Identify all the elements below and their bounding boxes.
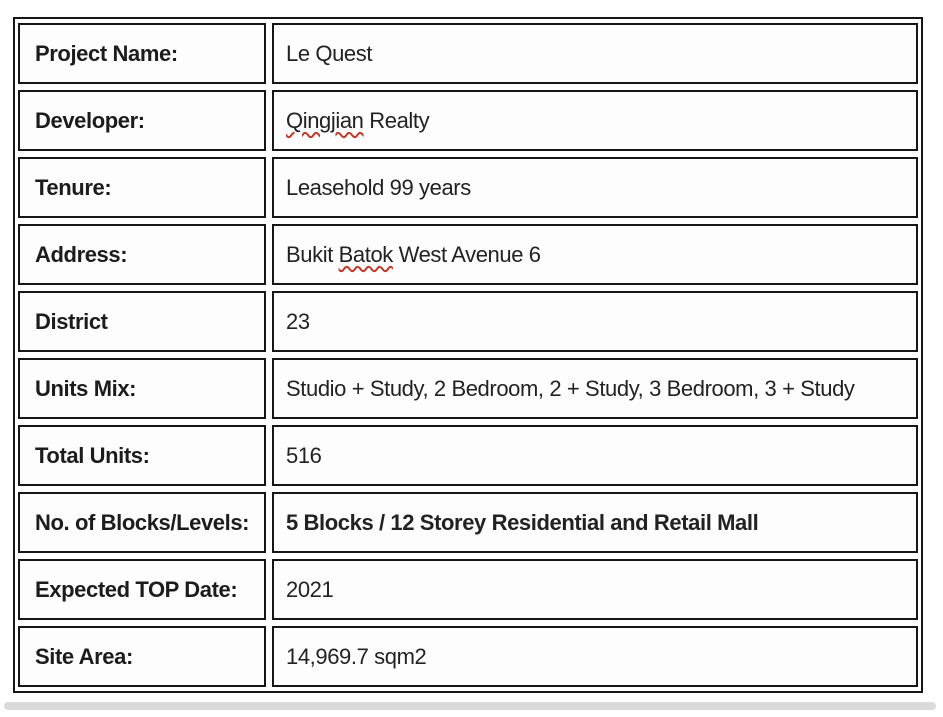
label-cell-address: Address: [18, 224, 266, 285]
value-address-pre: Bukit [286, 242, 339, 267]
value-developer-misspelled-word: Qingjian [286, 108, 364, 133]
value-cell-units-mix: Studio + Study, 2 Bedroom, 2 + Study, 3 … [272, 358, 918, 419]
value-cell-total-units: 516 [272, 425, 918, 486]
value-tenure: Leasehold 99 years [286, 175, 471, 201]
value-expected-top-date: 2021 [286, 577, 333, 603]
value-cell-project-name: Le Quest [272, 23, 918, 84]
label-cell-district: District [18, 291, 266, 352]
value-cell-district: 23 [272, 291, 918, 352]
value-address-misspelled-word: Batok [339, 242, 393, 267]
project-details-table: Project Name: Le Quest Developer: Qingji… [13, 17, 923, 693]
label-site-area: Site Area: [35, 644, 133, 670]
label-cell-project-name: Project Name: [18, 23, 266, 84]
table-row-project-name: Project Name: Le Quest [18, 23, 918, 84]
value-site-area: 14,969.7 sqm2 [286, 644, 426, 670]
value-cell-address: Bukit Batok West Avenue 6 [272, 224, 918, 285]
label-cell-site-area: Site Area: [18, 626, 266, 687]
value-address-post: West Avenue 6 [393, 242, 541, 267]
bottom-divider-bar [4, 702, 936, 710]
label-project-name: Project Name: [35, 41, 178, 67]
label-cell-developer: Developer: [18, 90, 266, 151]
label-tenure: Tenure: [35, 175, 111, 201]
value-project-name: Le Quest [286, 41, 372, 67]
table-row-total-units: Total Units: 516 [18, 425, 918, 486]
label-district: District [35, 309, 108, 335]
value-total-units: 516 [286, 443, 322, 469]
label-cell-tenure: Tenure: [18, 157, 266, 218]
label-blocks-levels: No. of Blocks/Levels: [35, 510, 249, 536]
label-units-mix: Units Mix: [35, 376, 136, 402]
page: Project Name: Le Quest Developer: Qingji… [0, 0, 943, 717]
table-row-expected-top-date: Expected TOP Date: 2021 [18, 559, 918, 620]
label-expected-top-date: Expected TOP Date: [35, 577, 237, 603]
label-total-units: Total Units: [35, 443, 150, 469]
table-row-district: District 23 [18, 291, 918, 352]
label-cell-total-units: Total Units: [18, 425, 266, 486]
value-blocks-levels: 5 Blocks / 12 Storey Residential and Ret… [286, 510, 758, 536]
value-district: 23 [286, 309, 310, 335]
value-developer-post: Realty [364, 108, 430, 133]
value-cell-site-area: 14,969.7 sqm2 [272, 626, 918, 687]
table-row-developer: Developer: Qingjian Realty [18, 90, 918, 151]
label-developer: Developer: [35, 108, 145, 134]
value-cell-tenure: Leasehold 99 years [272, 157, 918, 218]
table-row-units-mix: Units Mix: Studio + Study, 2 Bedroom, 2 … [18, 358, 918, 419]
value-cell-expected-top-date: 2021 [272, 559, 918, 620]
table-row-site-area: Site Area: 14,969.7 sqm2 [18, 626, 918, 687]
table-row-address: Address: Bukit Batok West Avenue 6 [18, 224, 918, 285]
label-cell-units-mix: Units Mix: [18, 358, 266, 419]
label-cell-expected-top-date: Expected TOP Date: [18, 559, 266, 620]
label-address: Address: [35, 242, 127, 268]
table-row-blocks-levels: No. of Blocks/Levels: 5 Blocks / 12 Stor… [18, 492, 918, 553]
value-units-mix: Studio + Study, 2 Bedroom, 2 + Study, 3 … [286, 376, 855, 402]
value-cell-blocks-levels: 5 Blocks / 12 Storey Residential and Ret… [272, 492, 918, 553]
value-address: Bukit Batok West Avenue 6 [286, 242, 541, 268]
table-row-tenure: Tenure: Leasehold 99 years [18, 157, 918, 218]
label-cell-blocks-levels: No. of Blocks/Levels: [18, 492, 266, 553]
value-cell-developer: Qingjian Realty [272, 90, 918, 151]
value-developer: Qingjian Realty [286, 108, 429, 134]
